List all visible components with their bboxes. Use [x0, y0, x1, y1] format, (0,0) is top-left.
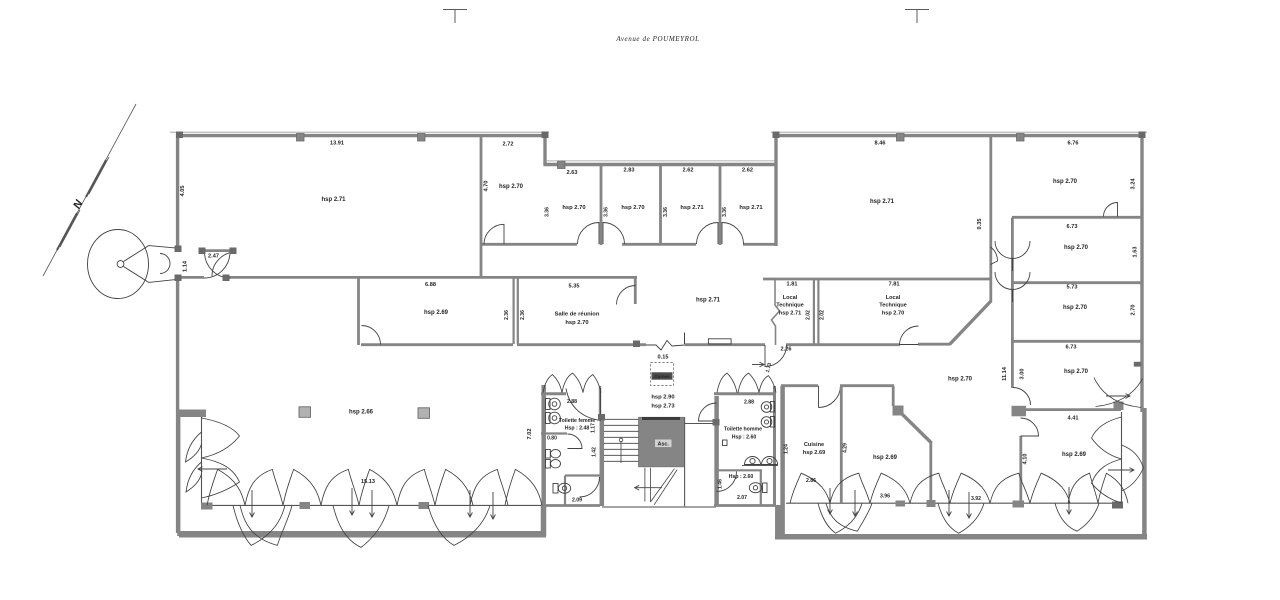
svg-text:6.88: 6.88 [425, 282, 436, 288]
svg-text:1.46: 1.46 [718, 479, 724, 489]
svg-text:0.80: 0.80 [547, 436, 557, 442]
svg-text:Hsp : 2.48: Hsp : 2.48 [565, 426, 590, 432]
svg-text:7.02: 7.02 [527, 429, 533, 440]
svg-text:Avenue de POUMEYROL: Avenue de POUMEYROL [615, 35, 699, 43]
svg-text:hsp 2.70: hsp 2.70 [499, 184, 524, 190]
svg-text:hsp 2.69: hsp 2.69 [424, 310, 449, 316]
svg-text:5.35: 5.35 [569, 284, 580, 290]
svg-text:4.41: 4.41 [1068, 416, 1079, 422]
svg-text:2.70: 2.70 [1131, 305, 1137, 316]
svg-text:2.36: 2.36 [504, 310, 510, 320]
svg-text:hsp 2.90: hsp 2.90 [651, 395, 674, 401]
svg-text:hsp 2.73: hsp 2.73 [651, 404, 675, 410]
svg-text:4.29: 4.29 [843, 443, 849, 453]
svg-text:hsp 2.71: hsp 2.71 [779, 311, 801, 317]
svg-text:hsp 2.70: hsp 2.70 [882, 311, 904, 317]
svg-text:0.15: 0.15 [658, 355, 669, 361]
svg-text:Toilette femme: Toilette femme [559, 418, 595, 424]
svg-text:2.86: 2.86 [806, 478, 816, 484]
svg-text:2.83: 2.83 [624, 168, 635, 174]
svg-text:4.70: 4.70 [484, 181, 490, 192]
svg-text:15.13: 15.13 [361, 479, 375, 485]
svg-text:Toilette homme: Toilette homme [724, 427, 762, 433]
svg-text:hsp 2.71: hsp 2.71 [321, 197, 346, 203]
svg-text:Asc.: Asc. [658, 441, 670, 447]
svg-text:hsp 2.69: hsp 2.69 [803, 450, 825, 456]
svg-text:3.36: 3.36 [663, 207, 669, 217]
svg-text:7.81: 7.81 [889, 282, 900, 288]
svg-text:4.05: 4.05 [180, 186, 186, 197]
svg-text:Salle de réunion: Salle de réunion [555, 312, 600, 318]
svg-text:2.62: 2.62 [742, 168, 753, 174]
svg-text:3.36: 3.36 [604, 207, 610, 217]
svg-text:Hsp : 2.60: Hsp : 2.60 [729, 474, 754, 480]
svg-text:2.36: 2.36 [520, 310, 526, 320]
svg-text:1.81: 1.81 [787, 282, 798, 288]
svg-text:2.26: 2.26 [781, 347, 792, 353]
svg-text:3.24: 3.24 [1131, 178, 1137, 190]
svg-text:Hsp : 2.60: Hsp : 2.60 [732, 435, 757, 441]
svg-text:2.09: 2.09 [572, 498, 582, 504]
svg-text:Technique: Technique [776, 303, 804, 309]
svg-text:Local: Local [886, 295, 901, 301]
svg-text:2.88: 2.88 [567, 399, 577, 405]
svg-text:1.14: 1.14 [183, 260, 189, 272]
svg-text:8.46: 8.46 [875, 141, 886, 147]
svg-text:3.96: 3.96 [880, 494, 890, 500]
svg-text:3.36: 3.36 [545, 207, 551, 217]
svg-text:Local: Local [783, 295, 798, 301]
svg-text:3.00: 3.00 [1020, 369, 1026, 380]
svg-text:Technique: Technique [879, 303, 907, 309]
svg-text:2.88: 2.88 [744, 400, 754, 406]
svg-text:0.35: 0.35 [977, 219, 983, 230]
svg-text:3.36: 3.36 [722, 207, 728, 217]
svg-text:hsp 2.70: hsp 2.70 [1063, 305, 1088, 311]
svg-text:6.76: 6.76 [1068, 141, 1079, 147]
svg-text:5.73: 5.73 [1067, 285, 1078, 291]
svg-text:hsp 2.70: hsp 2.70 [1053, 179, 1078, 185]
svg-text:hsp 2.69: hsp 2.69 [1062, 452, 1087, 458]
svg-text:Cuisine: Cuisine [804, 442, 824, 448]
svg-text:2.63: 2.63 [567, 170, 578, 176]
svg-text:hsp 2.70: hsp 2.70 [565, 320, 588, 326]
svg-text:2.47: 2.47 [208, 254, 219, 260]
svg-text:Gaines: Gaines [654, 374, 670, 379]
svg-text:1.63: 1.63 [1133, 247, 1139, 258]
svg-text:13.91: 13.91 [330, 141, 344, 147]
svg-text:2.02: 2.02 [820, 310, 826, 320]
svg-text:2.02: 2.02 [806, 310, 812, 320]
svg-text:hsp 2.71: hsp 2.71 [680, 205, 704, 211]
svg-text:hsp 2.71: hsp 2.71 [739, 205, 763, 211]
svg-text:1.42: 1.42 [592, 447, 598, 457]
svg-text:hsp 2.70: hsp 2.70 [948, 377, 973, 383]
svg-text:11.14: 11.14 [1002, 366, 1008, 381]
svg-text:hsp 2.70: hsp 2.70 [562, 205, 585, 211]
svg-text:2.72: 2.72 [503, 142, 514, 148]
svg-text:2.07: 2.07 [737, 495, 747, 501]
svg-text:hsp 2.66: hsp 2.66 [349, 410, 374, 416]
svg-text:4.10: 4.10 [1023, 454, 1029, 465]
svg-text:1.24: 1.24 [784, 444, 790, 454]
svg-text:hsp 2.71: hsp 2.71 [870, 199, 895, 205]
svg-text:hsp 2.70: hsp 2.70 [1064, 245, 1089, 251]
svg-text:6.73: 6.73 [1066, 345, 1077, 351]
svg-text:hsp 2.70: hsp 2.70 [621, 205, 644, 211]
svg-text:1.17: 1.17 [591, 423, 597, 433]
svg-text:2.62: 2.62 [683, 168, 694, 174]
svg-text:hsp 2.69: hsp 2.69 [873, 455, 898, 461]
svg-text:3.92: 3.92 [971, 496, 981, 502]
svg-text:hsp 2.70: hsp 2.70 [1064, 369, 1089, 375]
svg-text:hsp 2.71: hsp 2.71 [696, 298, 721, 304]
svg-text:6.73: 6.73 [1067, 224, 1078, 230]
